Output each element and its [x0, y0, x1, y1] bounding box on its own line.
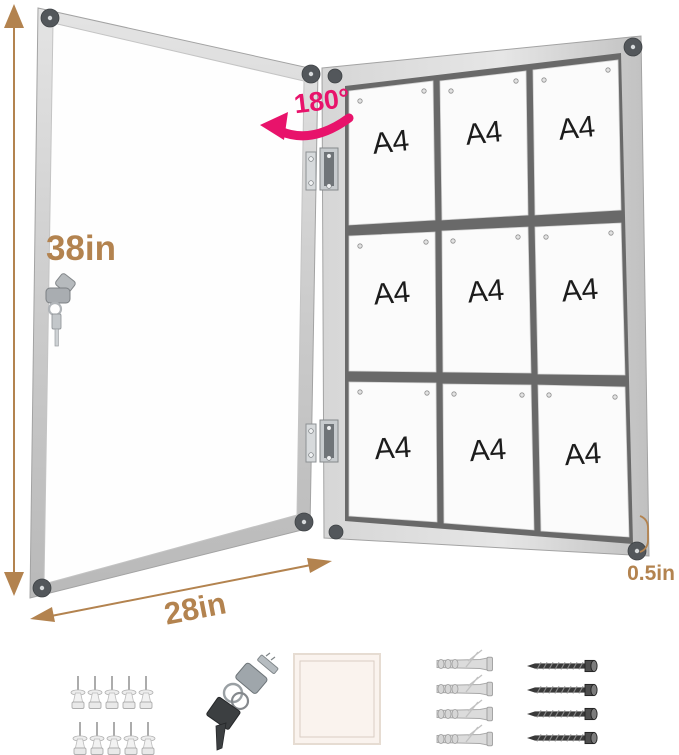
push-pin-icon: [88, 676, 102, 709]
product-diagram: A4 A4 A4 A4 A4 A4 A4 A4 A4: [0, 0, 679, 755]
wall-anchor-icon: [437, 725, 493, 746]
a4-label: A4: [466, 273, 505, 309]
board-door: [30, 8, 320, 598]
push-pin-icon: [90, 722, 104, 755]
wall-anchor-icon: [437, 650, 493, 671]
height-label: 38in: [46, 229, 116, 268]
push-pin-icon: [139, 676, 153, 709]
a4-label: A4: [372, 275, 411, 311]
depth-label: 0.5in: [627, 562, 675, 585]
push-pin-icon: [141, 722, 155, 755]
push-pins-group: [71, 676, 155, 755]
a4-label: A4: [563, 437, 602, 472]
hinge-icon: [306, 148, 338, 190]
a4-label: A4: [371, 124, 411, 161]
accessories-row: [71, 650, 597, 755]
hinge-icon: [306, 420, 338, 462]
push-pin-icon: [122, 676, 136, 709]
a4-label: A4: [560, 272, 599, 308]
height-arrow-up-icon: [4, 4, 24, 28]
screw-icon: [527, 684, 597, 695]
board-body: A4 A4 A4 A4 A4 A4 A4 A4 A4: [306, 36, 649, 560]
push-pin-icon: [73, 722, 87, 755]
width-arrow-left-icon: [30, 607, 55, 622]
wall-anchors-group: [437, 650, 493, 746]
screws-group: [527, 660, 597, 743]
a4-label: A4: [557, 110, 597, 147]
keys-icon: [206, 653, 278, 750]
wall-anchor-icon: [437, 700, 493, 721]
wall-anchor-icon: [437, 675, 493, 696]
notice-board-illustration: A4 A4 A4 A4 A4 A4 A4 A4 A4: [0, 0, 679, 755]
adhesive-pad-icon: [294, 654, 380, 744]
height-arrow-down-icon: [4, 572, 24, 596]
a4-label: A4: [464, 115, 504, 152]
a4-label: A4: [468, 433, 507, 468]
screw-icon: [527, 660, 597, 671]
push-pin-icon: [71, 676, 85, 709]
door-panel: [44, 23, 304, 584]
width-arrow-right-icon: [307, 558, 332, 573]
screw-icon: [527, 732, 597, 743]
push-pin-icon: [105, 676, 119, 709]
push-pin-icon: [124, 722, 138, 755]
push-pin-icon: [107, 722, 121, 755]
a4-label: A4: [373, 431, 412, 466]
screw-icon: [527, 708, 597, 719]
